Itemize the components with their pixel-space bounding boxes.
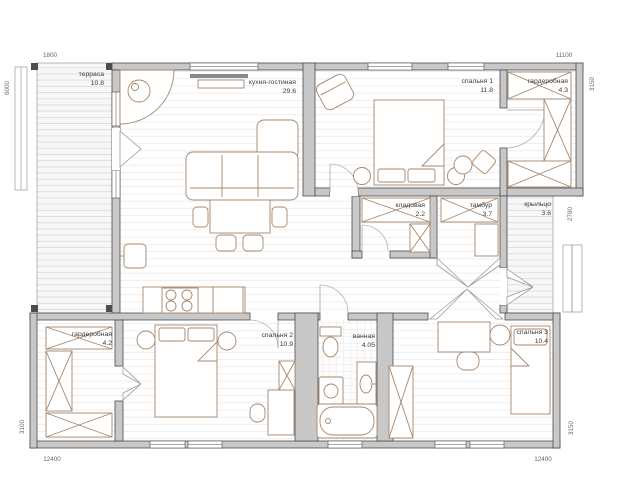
room-area-porch: 3.6 <box>542 210 552 217</box>
dim-left-bottom: 3100 <box>19 420 26 435</box>
wall-hall-right <box>500 196 507 268</box>
dining-chair <box>193 207 208 227</box>
toilet-tank <box>320 327 341 336</box>
room-label-bathroom: ванная <box>353 333 376 340</box>
room-area-bedroom1: 11.8 <box>480 87 493 94</box>
floor-plan-page: терраса 10.8 кухня-гостиная 29.6 спальня… <box>0 0 626 502</box>
window-bedroom2-b <box>188 441 222 448</box>
tv-screen <box>190 74 248 78</box>
pillow <box>378 169 405 182</box>
terrace-post <box>31 63 38 70</box>
room-label-porch: крыльцо <box>524 201 551 208</box>
pillow <box>408 169 435 182</box>
window-bathroom <box>328 441 362 448</box>
dining-chair <box>243 235 263 251</box>
dim-right-top: 3150 <box>589 77 596 92</box>
dim-bottom-right: 12400 <box>534 456 552 463</box>
washing-machine <box>319 377 343 406</box>
room-area-terrace: 10.8 <box>91 80 104 87</box>
dim-bottom-left: 12400 <box>43 456 61 463</box>
wall-panel <box>124 244 146 268</box>
dim-right-mid: 2780 <box>567 207 574 222</box>
wall-living-bedroom1 <box>303 63 315 196</box>
room-area-wardrobe-bottom: 4.2 <box>103 340 113 347</box>
room-label-bedroom3: спальня 3 <box>517 329 549 336</box>
room-area-bedroom2: 10.9 <box>280 341 293 348</box>
nightstand <box>137 331 155 349</box>
stool <box>490 325 510 345</box>
pillow <box>188 328 214 341</box>
room-label-vestibule: тамбур <box>470 201 492 209</box>
room-area-bathroom: 4.05 <box>362 342 375 349</box>
room-label-wardrobe-top: гардеробная <box>528 77 568 85</box>
room-area-vestibule: 3.7 <box>483 211 493 218</box>
dim-top-right: 11100 <box>556 52 573 59</box>
terrace-deck <box>37 63 113 313</box>
room-area-storage: 2.2 <box>416 211 426 218</box>
room-label-storage: кладовая <box>395 202 425 209</box>
room-label-wardrobe-bottom: гардеробная <box>72 330 112 338</box>
window-terrace-b <box>112 170 120 198</box>
wall-bedroom2-wardrobe <box>115 401 123 441</box>
wall-storage-bottom <box>352 251 362 258</box>
room-area-kitchen-living: 29.6 <box>283 88 296 95</box>
room-label-kitchen-living: кухня-гостиная <box>249 79 296 86</box>
dining-chair <box>216 235 236 251</box>
toilet <box>323 337 338 357</box>
room-label-bedroom2: спальня 2 <box>262 332 294 339</box>
window-bedroom1-a <box>368 63 412 70</box>
wall-exterior-left-wing <box>30 313 37 448</box>
wall-exterior-right-wing <box>553 313 560 448</box>
side-table <box>454 156 472 174</box>
nightstand <box>354 168 371 185</box>
terrace-post <box>31 305 38 312</box>
wall-corridor-top <box>315 188 330 196</box>
wall-bedroom1-wardrobe <box>500 70 507 108</box>
dim-right-bottom: 3150 <box>568 421 575 436</box>
wall-bedroom2-wardrobe <box>115 320 123 366</box>
desk-chair <box>457 352 479 370</box>
wall-bedroom2-bath <box>295 313 318 441</box>
desk-chair <box>250 404 265 422</box>
wall-exterior-top <box>112 63 583 70</box>
room-label-terrace: терраса <box>79 71 105 78</box>
wall-bedroom1-wardrobe <box>500 148 507 196</box>
tv-console <box>198 80 244 88</box>
wall-exterior-right-top <box>576 63 583 196</box>
window-bedroom2-a <box>150 441 185 448</box>
bench <box>475 224 498 256</box>
desk <box>268 390 294 435</box>
wall-corridor-top <box>358 188 583 196</box>
window-terrace-a <box>112 92 120 126</box>
porch-steps <box>563 245 582 312</box>
dim-left: 6000 <box>4 81 11 96</box>
dim-top-left: 1800 <box>43 52 58 59</box>
wall-storage-left <box>352 196 360 258</box>
pillow <box>159 328 185 341</box>
window-living <box>190 63 258 70</box>
room-area-bedroom3: 10.4 <box>535 338 548 345</box>
nightstand <box>218 332 236 350</box>
window-bedroom3-b <box>470 441 504 448</box>
wall-storage-vestibule <box>430 196 437 258</box>
window-bedroom1-b <box>448 63 484 70</box>
kitchen-counter <box>143 287 245 313</box>
wall-bottomwing-top <box>505 313 560 320</box>
fireplace-stove-icon <box>128 80 150 102</box>
dining-chair <box>272 207 287 227</box>
room-area-wardrobe-top: 4.3 <box>559 87 569 94</box>
wall-hall-right <box>500 305 507 313</box>
floor-plan: терраса 10.8 кухня-гостиная 29.6 спальня… <box>0 0 626 502</box>
window-bedroom3-a <box>435 441 466 448</box>
kitchen-cabinet <box>213 287 243 313</box>
room-label-bedroom1: спальня 1 <box>462 78 494 85</box>
desk <box>438 322 490 352</box>
wall-bottomwing-top <box>30 313 250 320</box>
